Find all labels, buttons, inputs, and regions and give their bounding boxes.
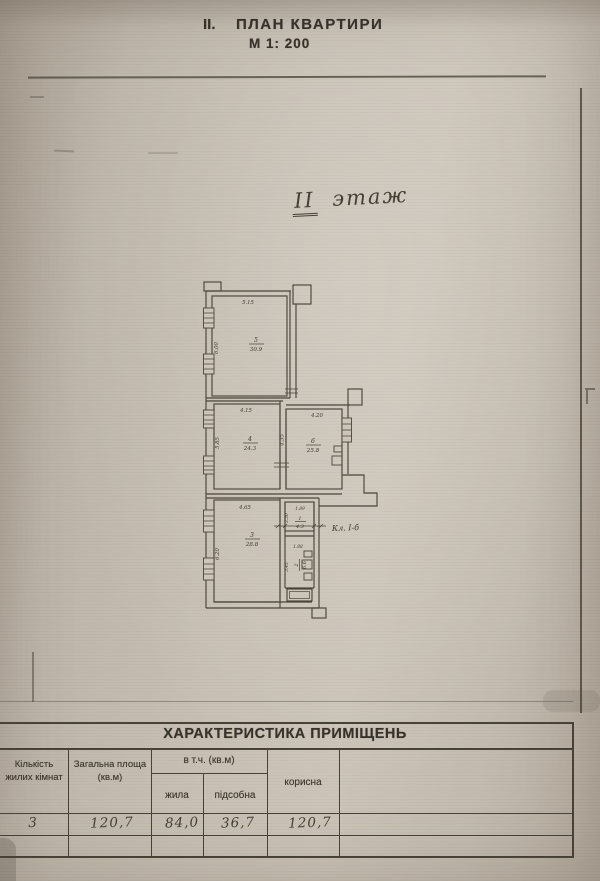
table-border bbox=[151, 773, 267, 774]
svg-text:6.6: 6.6 bbox=[302, 560, 308, 569]
window-symbol bbox=[204, 510, 215, 580]
dim-room5-width: 5.15 bbox=[242, 300, 254, 306]
wall bbox=[319, 475, 377, 506]
room-2-label: 2 6.6 bbox=[294, 559, 308, 571]
dim-room4-width: 4.15 bbox=[239, 408, 252, 414]
room-5-walls bbox=[212, 296, 287, 396]
scan-artifact bbox=[30, 96, 44, 98]
scan-artifact bbox=[148, 152, 178, 154]
page-fold-line bbox=[580, 88, 582, 713]
room-3-label: 3 28.8 bbox=[245, 532, 260, 548]
header-total-area: Загальна площа (кв.м) bbox=[71, 758, 149, 785]
table-title: ХАРАКТЕРИСТИКА ПРИМІЩЕНЬ bbox=[110, 726, 460, 742]
dim-divider-4-6: 4.35 bbox=[280, 433, 286, 446]
toilet-symbol bbox=[304, 551, 312, 557]
scan-smudge bbox=[0, 838, 16, 881]
svg-text:3: 3 bbox=[250, 532, 254, 539]
svg-text:28.8: 28.8 bbox=[245, 542, 259, 548]
bath-symbol-inner bbox=[290, 592, 310, 599]
table-border bbox=[0, 835, 574, 836]
floor-word: этаж bbox=[332, 183, 409, 211]
value-auxiliary-area: 36,7 bbox=[216, 814, 261, 832]
radiator-symbol bbox=[334, 446, 342, 452]
room-6-label: 6 25.8 bbox=[306, 438, 321, 454]
dim-room4-height: 5.85 bbox=[215, 436, 221, 448]
scan-artifact bbox=[54, 150, 74, 153]
svg-text:6: 6 bbox=[311, 438, 315, 445]
floor-numeral: ІІ bbox=[291, 188, 317, 217]
svg-text:5: 5 bbox=[254, 337, 258, 344]
value-room-count: 3 bbox=[15, 814, 52, 831]
value-living-area: 84,0 bbox=[160, 814, 205, 832]
scale-note: М 1: 200 bbox=[249, 36, 310, 51]
page-title: ПЛАН КВАРТИРИ bbox=[236, 16, 383, 33]
table-border bbox=[572, 722, 574, 858]
table-border bbox=[267, 748, 268, 856]
svg-text:24.3: 24.3 bbox=[243, 446, 257, 452]
table-border bbox=[339, 748, 340, 856]
table-border bbox=[0, 856, 574, 858]
svg-text:4: 4 bbox=[247, 436, 252, 443]
closet-annotation: Кл. І-б bbox=[331, 523, 360, 533]
chimney-block bbox=[293, 285, 311, 304]
scan-artifact bbox=[586, 390, 588, 404]
header-living: жила bbox=[153, 789, 201, 803]
section-number: II. bbox=[203, 16, 216, 33]
bath-symbol bbox=[287, 589, 312, 601]
dim-room1-width: 1.89 bbox=[295, 507, 305, 512]
dim-room3-height: 6.20 bbox=[215, 547, 221, 559]
floor-plan: 5.15 6.00 4.15 5.85 4.35 4.20 4.65 6.20 … bbox=[190, 270, 400, 622]
door-mark bbox=[274, 463, 289, 467]
scan-artifact bbox=[0, 701, 573, 702]
room-4-label: 4 24.3 bbox=[243, 436, 258, 452]
svg-text:1: 1 bbox=[298, 516, 301, 522]
window-symbol bbox=[204, 410, 215, 474]
svg-text:2: 2 bbox=[294, 563, 300, 567]
value-useful-area: 120,7 bbox=[285, 814, 336, 832]
room-1-label: 1 4.3 bbox=[295, 516, 306, 530]
scan-artifact bbox=[32, 652, 34, 702]
room-5-label: 5 30.9 bbox=[249, 337, 264, 353]
chimney-block bbox=[312, 608, 326, 618]
svg-text:4.3: 4.3 bbox=[295, 524, 304, 530]
wall-ledge bbox=[204, 282, 221, 291]
table-border bbox=[68, 748, 69, 856]
radiator-symbol bbox=[332, 456, 342, 465]
table-border bbox=[0, 748, 574, 750]
dim-room2-width: 1.88 bbox=[293, 545, 303, 550]
table-border bbox=[0, 813, 574, 814]
header-including: в т.ч. (кв.м) bbox=[151, 754, 267, 768]
window-symbol bbox=[342, 418, 352, 442]
scanned-page: II. ПЛАН КВАРТИРИ М 1: 200 ІІ этаж bbox=[0, 0, 600, 881]
header-auxiliary: підсобна bbox=[205, 789, 265, 803]
header-room-count: Кількість жилих кімнат bbox=[2, 758, 66, 785]
floor-annotation: ІІ этаж bbox=[291, 183, 408, 213]
value-total-area: 120,7 bbox=[87, 814, 138, 832]
room-3-walls bbox=[214, 500, 280, 602]
header-useful: корисна bbox=[269, 776, 337, 790]
header-rule bbox=[28, 75, 546, 78]
dim-room2-height: 3.45 bbox=[285, 562, 290, 572]
dim-room3-width: 4.65 bbox=[238, 505, 251, 511]
dim-room1-height: 2.30 bbox=[285, 513, 290, 524]
fixture-symbol bbox=[304, 573, 312, 580]
svg-text:30.9: 30.9 bbox=[250, 347, 263, 353]
dim-room5-height: 6.00 bbox=[214, 341, 220, 353]
wall-pillar bbox=[348, 389, 362, 405]
table-border bbox=[0, 722, 574, 724]
svg-text:25.8: 25.8 bbox=[306, 448, 320, 454]
dim-room6-width: 4.20 bbox=[310, 413, 323, 419]
